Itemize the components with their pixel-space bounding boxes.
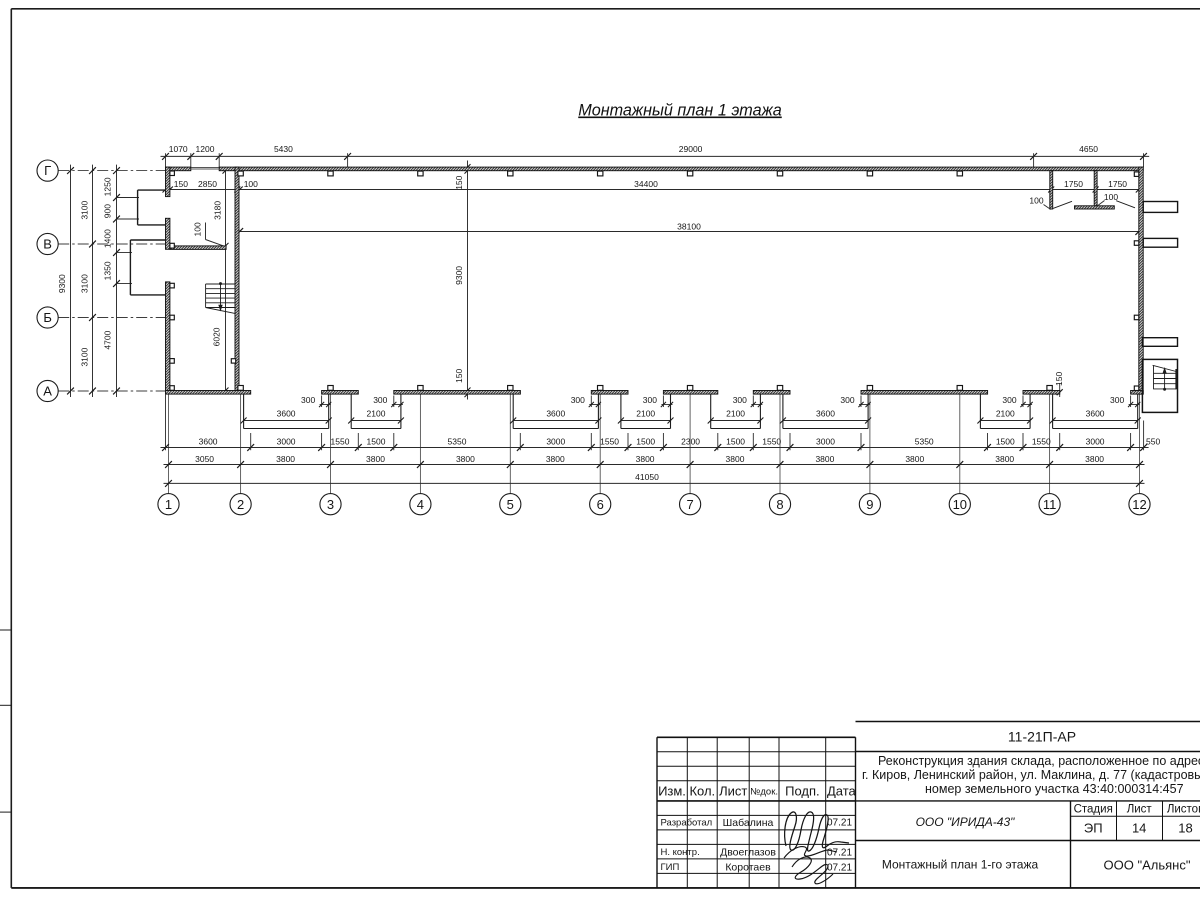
svg-text:3100: 3100 xyxy=(80,347,90,366)
svg-text:3800: 3800 xyxy=(276,454,295,464)
svg-text:300: 300 xyxy=(643,395,657,405)
svg-text:1550: 1550 xyxy=(331,436,350,446)
svg-text:11: 11 xyxy=(1043,497,1057,512)
svg-text:10: 10 xyxy=(953,497,967,512)
svg-text:3180: 3180 xyxy=(212,201,222,220)
svg-text:3000: 3000 xyxy=(816,436,835,446)
svg-text:В: В xyxy=(43,237,52,252)
svg-text:Разработал: Разработал xyxy=(661,818,713,829)
svg-text:Коротаев: Коротаев xyxy=(725,861,771,873)
svg-text:г. Киров, Ленинский район, ул.: г. Киров, Ленинский район, ул. Маклина, … xyxy=(862,768,1200,782)
svg-text:41050: 41050 xyxy=(635,472,659,482)
svg-text:1400: 1400 xyxy=(103,229,113,248)
svg-text:150: 150 xyxy=(174,179,188,189)
svg-text:Двоеглазов: Двоеглазов xyxy=(720,847,776,859)
svg-text:3050: 3050 xyxy=(195,454,214,464)
svg-text:№док.: №док. xyxy=(750,787,778,798)
svg-text:Шабалина: Шабалина xyxy=(723,817,774,829)
svg-text:3800: 3800 xyxy=(726,454,745,464)
svg-text:Лист: Лист xyxy=(719,784,747,799)
svg-text:07.21: 07.21 xyxy=(827,863,852,874)
svg-text:3: 3 xyxy=(327,497,334,512)
svg-text:2100: 2100 xyxy=(726,408,745,418)
svg-text:1500: 1500 xyxy=(996,436,1015,446)
svg-text:34400: 34400 xyxy=(634,179,658,189)
svg-text:3600: 3600 xyxy=(816,408,835,418)
svg-text:3800: 3800 xyxy=(636,454,655,464)
svg-text:1: 1 xyxy=(165,497,172,512)
svg-text:9: 9 xyxy=(866,497,873,512)
svg-text:3600: 3600 xyxy=(277,408,296,418)
svg-text:7: 7 xyxy=(686,497,693,512)
svg-text:5: 5 xyxy=(507,497,514,512)
svg-text:3800: 3800 xyxy=(456,454,475,464)
svg-text:Стадия: Стадия xyxy=(1074,804,1113,816)
svg-text:8: 8 xyxy=(776,497,783,512)
svg-text:100: 100 xyxy=(1104,192,1118,202)
svg-text:Лист: Лист xyxy=(1127,804,1153,816)
svg-text:1750: 1750 xyxy=(1108,179,1127,189)
svg-text:5350: 5350 xyxy=(448,436,467,446)
svg-text:150: 150 xyxy=(454,369,464,383)
svg-text:3100: 3100 xyxy=(80,200,90,219)
svg-text:38100: 38100 xyxy=(677,222,701,232)
svg-text:300: 300 xyxy=(301,395,315,405)
svg-text:Дата: Дата xyxy=(827,784,857,799)
svg-text:3600: 3600 xyxy=(1086,408,1105,418)
svg-text:А: А xyxy=(43,384,52,399)
svg-text:1070: 1070 xyxy=(169,144,188,154)
svg-text:6: 6 xyxy=(597,497,604,512)
svg-text:1500: 1500 xyxy=(636,436,655,446)
svg-text:ООО "ИРИДА-43": ООО "ИРИДА-43" xyxy=(916,815,1016,829)
svg-text:5430: 5430 xyxy=(274,144,293,154)
svg-text:07.21: 07.21 xyxy=(827,818,852,829)
svg-text:3000: 3000 xyxy=(277,436,296,446)
svg-text:3800: 3800 xyxy=(366,454,385,464)
svg-text:14: 14 xyxy=(1132,821,1146,836)
svg-text:300: 300 xyxy=(373,395,387,405)
svg-text:1550: 1550 xyxy=(1032,436,1051,446)
svg-text:550: 550 xyxy=(1146,436,1160,446)
svg-text:12: 12 xyxy=(1132,497,1146,512)
svg-text:6020: 6020 xyxy=(212,327,222,346)
svg-text:ГИП: ГИП xyxy=(661,862,680,873)
svg-text:4650: 4650 xyxy=(1079,144,1098,154)
svg-text:2100: 2100 xyxy=(996,408,1015,418)
svg-text:3100: 3100 xyxy=(80,274,90,293)
svg-text:3800: 3800 xyxy=(905,454,924,464)
svg-text:Н. контр.: Н. контр. xyxy=(661,847,700,858)
svg-text:300: 300 xyxy=(1002,395,1016,405)
svg-text:300: 300 xyxy=(571,395,585,405)
svg-text:Монтажный план 1-го этажа: Монтажный план 1-го этажа xyxy=(882,858,1039,872)
svg-text:1750: 1750 xyxy=(1064,179,1083,189)
svg-text:Реконструкция здания склада, р: Реконструкция здания склада, расположенн… xyxy=(878,754,1200,768)
svg-text:3800: 3800 xyxy=(815,454,834,464)
svg-text:1500: 1500 xyxy=(726,436,745,446)
svg-text:5350: 5350 xyxy=(915,436,934,446)
svg-text:150: 150 xyxy=(454,175,464,189)
svg-text:4700: 4700 xyxy=(103,330,113,349)
svg-text:ООО "Альянс": ООО "Альянс" xyxy=(1104,858,1191,873)
svg-text:Г: Г xyxy=(44,163,51,178)
svg-text:2850: 2850 xyxy=(198,179,217,189)
svg-text:3800: 3800 xyxy=(1085,454,1104,464)
svg-text:150: 150 xyxy=(1054,372,1064,386)
svg-text:900: 900 xyxy=(103,204,113,218)
svg-text:2100: 2100 xyxy=(636,408,655,418)
svg-text:3000: 3000 xyxy=(546,436,565,446)
svg-text:3800: 3800 xyxy=(546,454,565,464)
svg-text:1500: 1500 xyxy=(367,436,386,446)
svg-text:3000: 3000 xyxy=(1086,436,1105,446)
svg-text:1550: 1550 xyxy=(600,436,619,446)
svg-text:3600: 3600 xyxy=(546,408,565,418)
svg-text:100: 100 xyxy=(1029,196,1043,206)
svg-text:300: 300 xyxy=(840,395,854,405)
svg-text:1350: 1350 xyxy=(103,261,113,280)
svg-text:2: 2 xyxy=(237,497,244,512)
svg-text:Кол.: Кол. xyxy=(689,784,715,799)
svg-text:3800: 3800 xyxy=(995,454,1014,464)
svg-text:9300: 9300 xyxy=(454,266,464,285)
svg-text:ЭП: ЭП xyxy=(1084,821,1103,836)
svg-text:29000: 29000 xyxy=(679,144,703,154)
svg-text:300: 300 xyxy=(1110,395,1124,405)
svg-text:11-21П-АР: 11-21П-АР xyxy=(1008,729,1076,745)
svg-text:4: 4 xyxy=(417,497,424,512)
svg-text:2300: 2300 xyxy=(681,436,700,446)
svg-text:2100: 2100 xyxy=(367,408,386,418)
svg-text:1200: 1200 xyxy=(196,144,215,154)
svg-text:9300: 9300 xyxy=(57,274,67,293)
svg-text:Монтажный план 1 этажа: Монтажный план 1 этажа xyxy=(578,102,782,120)
svg-text:номер земельного участка 43:40: номер земельного участка 43:40:000314:45… xyxy=(925,782,1184,796)
svg-text:Б: Б xyxy=(43,310,52,325)
svg-text:300: 300 xyxy=(733,395,747,405)
svg-text:18: 18 xyxy=(1178,821,1192,836)
svg-text:Подп.: Подп. xyxy=(785,784,820,799)
svg-text:Изм.: Изм. xyxy=(658,784,686,799)
svg-text:100: 100 xyxy=(244,179,258,189)
svg-text:100: 100 xyxy=(192,222,202,236)
svg-text:1250: 1250 xyxy=(103,177,113,196)
svg-text:3600: 3600 xyxy=(199,436,218,446)
svg-text:07.21: 07.21 xyxy=(827,848,852,859)
svg-text:1550: 1550 xyxy=(762,436,781,446)
svg-text:Листов: Листов xyxy=(1167,804,1200,816)
